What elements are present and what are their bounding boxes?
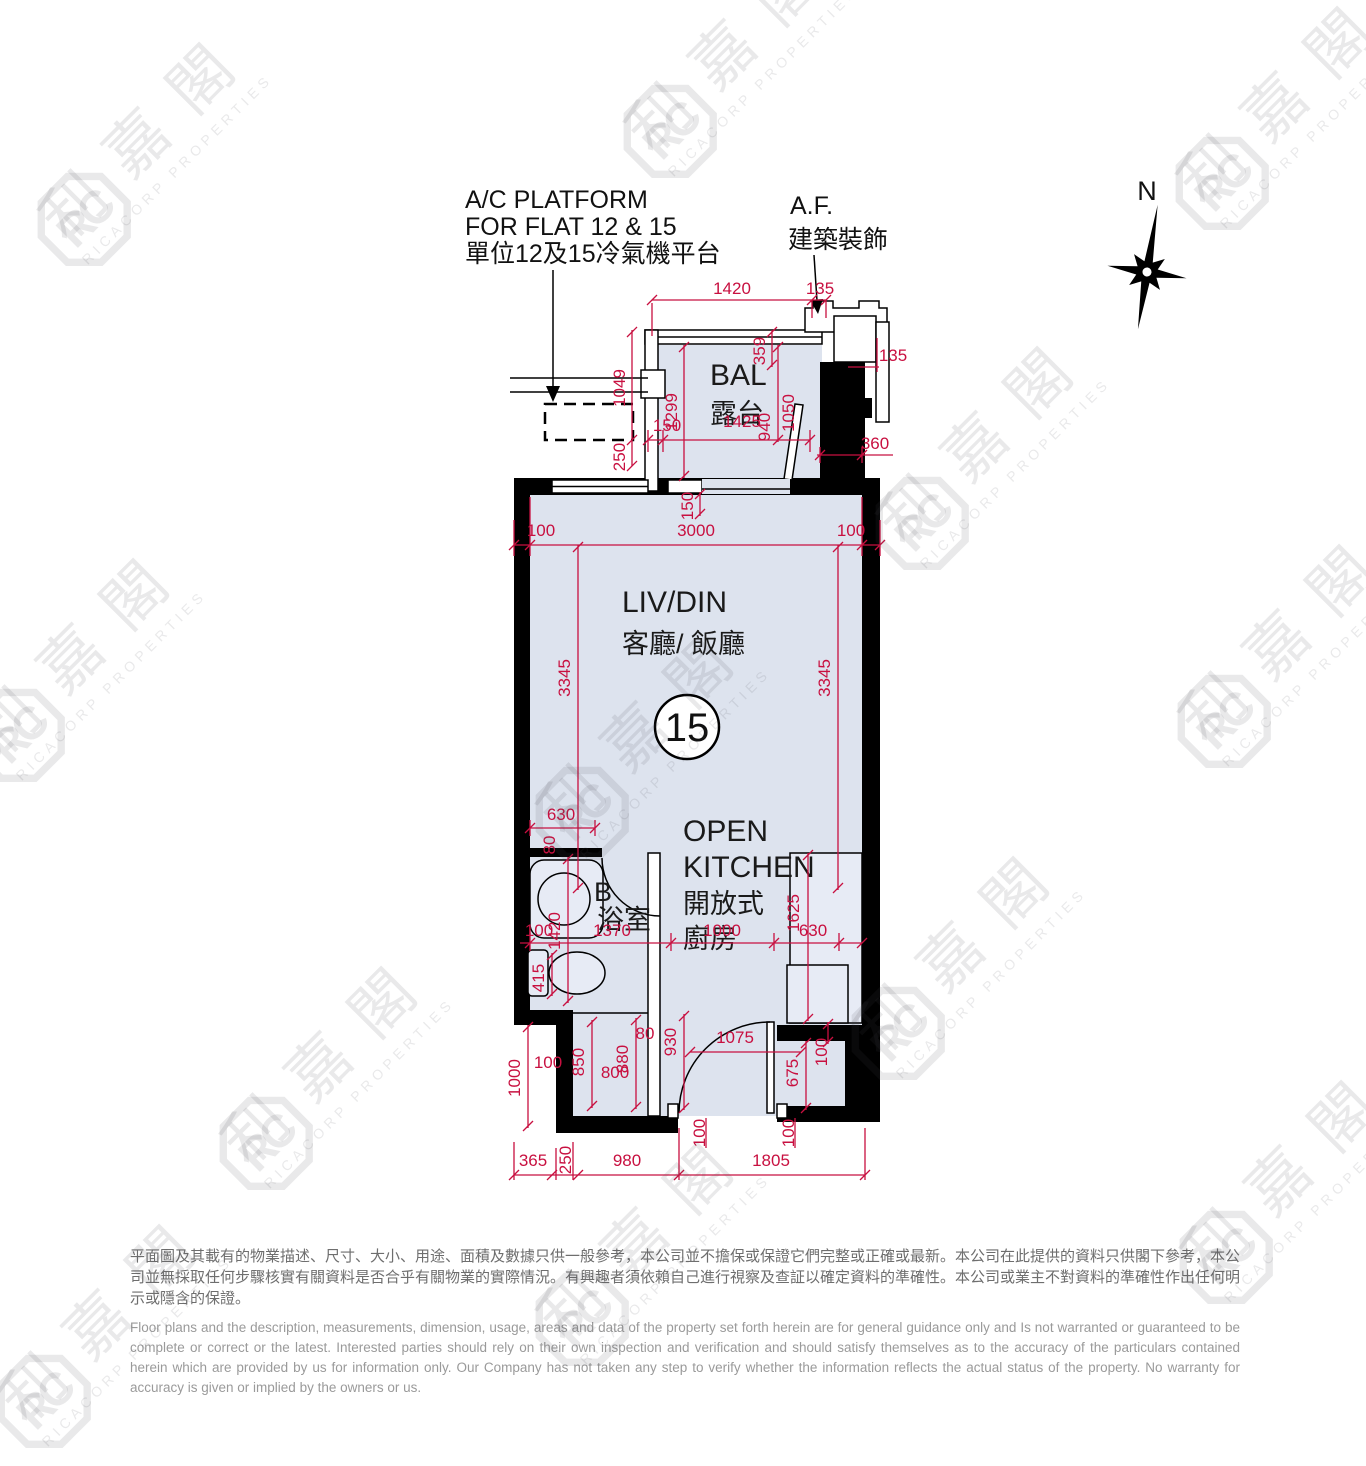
dim-label: 630	[799, 921, 827, 940]
dim-label: 100	[534, 1053, 562, 1072]
north-arrow	[1098, 199, 1197, 336]
dim-label: 100	[779, 1119, 798, 1147]
dim-label: 250	[556, 1146, 575, 1174]
dim-label: 100	[527, 521, 555, 540]
dim-label: 100	[837, 521, 865, 540]
dim-label: 1420	[713, 279, 751, 298]
bath-label: B	[594, 877, 612, 907]
dim-label: 100	[525, 921, 553, 940]
dim-label: 1625	[784, 894, 803, 932]
dim-label: 3345	[555, 659, 574, 697]
dim-label: 3345	[815, 659, 834, 697]
unit-number: 15	[665, 706, 710, 750]
door-jamb	[777, 1104, 787, 1118]
living-label-zh: 客廳/ 飯廳	[622, 629, 745, 659]
floorplan-page: { "watermark": { "zh": "利嘉閣", "en": "RIC…	[0, 0, 1366, 1366]
entrance-door-leaf	[767, 1022, 774, 1113]
af-label-zh: 建築裝飾	[788, 226, 888, 254]
svg-text:RC: RC	[6, 1360, 85, 1439]
annotation-labels: A/C PLATFORM FOR FLAT 12 & 15 單位12及15冷氣機…	[465, 186, 888, 268]
ac-platform-label-zh: 單位12及15冷氣機平台	[465, 240, 721, 268]
dim-label: 930	[661, 1028, 680, 1056]
toilet-bowl	[549, 952, 605, 994]
dim-label: 360	[861, 434, 889, 453]
dim-label: 1075	[716, 1028, 754, 1047]
kitchen-label-zh: 開放式	[683, 889, 764, 919]
floor-plan-drawing: N A/C PLATFORM FOR FLAT 12 & 15 單位12及15冷…	[0, 0, 1366, 1366]
dim-label: 800	[601, 1063, 629, 1082]
dim-label: 150	[653, 416, 681, 435]
dim-label: 415	[529, 964, 548, 992]
af-label: A.F.	[790, 192, 833, 220]
balcony-door-opening	[702, 479, 790, 494]
dim-label: 1805	[752, 1151, 790, 1170]
dim-label: 359	[750, 337, 769, 365]
dim-label: 630	[547, 805, 575, 824]
ac-platform-label: A/C PLATFORM	[465, 186, 648, 214]
disclaimer-en: Floor plans and the description, measure…	[130, 1318, 1240, 1398]
living-label: LIV/DIN	[622, 586, 727, 619]
dim-label: 250	[610, 443, 629, 471]
dim-label: 980	[613, 1151, 641, 1170]
north-label: N	[1137, 176, 1157, 206]
dim-label: 1370	[593, 921, 631, 940]
dim-label: 1425	[723, 412, 761, 431]
dim-label: 80	[636, 1024, 655, 1043]
dim-label: 135	[806, 279, 834, 298]
dim-label: 850	[569, 1048, 588, 1076]
ac-platform-outline	[545, 404, 633, 440]
disclaimer-zh: 平面圖及其載有的物業描述、尺寸、大小、用途、面積及數據只供一般參考，本公司並不擔…	[130, 1246, 1240, 1309]
dim-label: 365	[519, 1151, 547, 1170]
dim-label: 3000	[677, 521, 715, 540]
kitchen-appliance	[787, 965, 848, 1023]
dim-label: 675	[783, 1059, 802, 1087]
kitchen-label: OPEN	[683, 815, 768, 848]
dim-label: 1049	[610, 369, 629, 407]
dim-label: 100	[690, 1119, 709, 1147]
bathroom-wall	[648, 853, 660, 1116]
dim-label: 80	[540, 836, 559, 855]
kitchen-label: KITCHEN	[683, 851, 815, 884]
window	[668, 480, 702, 493]
af-fin	[876, 322, 889, 422]
dim-label: 1000	[505, 1059, 524, 1097]
dim-label: 135	[879, 346, 907, 365]
dim-label: 1050	[779, 394, 798, 432]
dim-label: 1000	[703, 921, 741, 940]
ac-platform-label: FOR FLAT 12 & 15	[465, 213, 677, 241]
dim-label: 150	[678, 492, 697, 520]
dim-label: 100	[812, 1038, 831, 1066]
disclaimer: 平面圖及其載有的物業描述、尺寸、大小、用途、面積及數據只供一般參考，本公司並不擔…	[130, 1246, 1240, 1398]
door-jamb	[668, 1104, 678, 1118]
arrowhead	[546, 386, 560, 402]
balcony-left-wall	[645, 330, 658, 491]
